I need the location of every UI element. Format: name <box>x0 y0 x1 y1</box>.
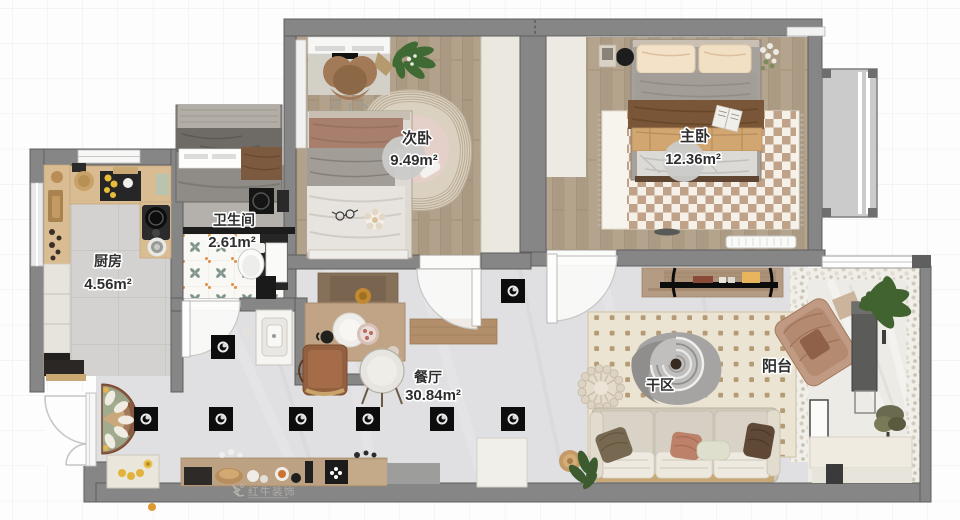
svg-text:4.56m²: 4.56m² <box>84 276 132 293</box>
svg-text:卫生间: 卫生间 <box>213 212 255 228</box>
svg-text:厨房: 厨房 <box>94 253 122 269</box>
svg-text:次卧: 次卧 <box>402 129 432 147</box>
svg-text:9.49m²: 9.49m² <box>390 152 438 169</box>
svg-text:12.36m²: 12.36m² <box>665 151 721 168</box>
svg-text:主卧: 主卧 <box>680 127 710 145</box>
svg-text:2.61m²: 2.61m² <box>208 234 256 251</box>
svg-text:餐厅: 餐厅 <box>413 369 442 385</box>
svg-text:阳台: 阳台 <box>762 357 792 375</box>
svg-text:红牛装饰: 红牛装饰 <box>248 485 296 498</box>
svg-text:干区: 干区 <box>646 377 674 393</box>
svg-text:30.84m²: 30.84m² <box>405 387 461 404</box>
